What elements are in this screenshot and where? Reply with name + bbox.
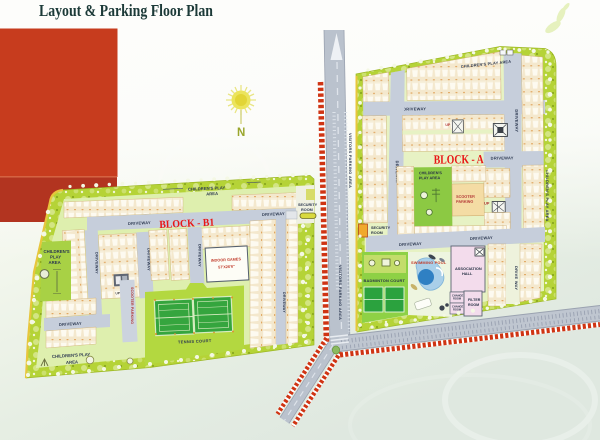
svg-text:DRIVE WAY: DRIVE WAY [514,266,519,290]
svg-text:ROOM: ROOM [301,208,313,212]
svg-text:PLAY: PLAY [50,255,61,260]
svg-text:ROOM: ROOM [468,303,479,307]
svg-text:CHILDREN'S: CHILDREN'S [44,249,70,254]
svg-text:DRIVEWAY: DRIVEWAY [262,211,285,217]
svg-text:UP: UP [484,202,490,206]
svg-text:DRIVEWAY: DRIVEWAY [128,220,151,226]
svg-text:UP: UP [445,123,451,127]
svg-text:ROOM: ROOM [453,308,461,312]
svg-text:N: N [237,127,245,139]
svg-text:PARKING: PARKING [456,200,473,204]
svg-text:BLOCK - A: BLOCK - A [434,152,484,167]
svg-text:AREA: AREA [206,191,218,197]
svg-text:CHILDREN'S PLAY AREA: CHILDREN'S PLAY AREA [545,170,550,222]
svg-text:FILTER: FILTER [468,298,481,302]
svg-text:PLAY AREA: PLAY AREA [419,176,441,180]
svg-text:SECURITY: SECURITY [371,226,391,230]
svg-text:DRIVEWAY: DRIVEWAY [95,252,99,274]
svg-text:VISITORS PARKING AREA: VISITORS PARKING AREA [338,265,343,320]
svg-text:DRIVEWAY: DRIVEWAY [470,235,493,241]
svg-text:ROOM: ROOM [371,231,383,235]
svg-text:AREA: AREA [66,359,78,365]
svg-text:SCOOTER: SCOOTER [456,195,475,199]
svg-text:AREA: AREA [49,260,61,265]
svg-text:ROOM: ROOM [453,297,461,301]
svg-text:DRIVEWAY: DRIVEWAY [491,155,514,160]
svg-text:CHILDREN'S: CHILDREN'S [419,171,443,175]
svg-text:DRIVEWAY: DRIVEWAY [282,292,286,313]
svg-text:DRIVEWAY: DRIVEWAY [399,241,422,247]
svg-text:HALL: HALL [462,271,473,276]
svg-text:Layout & Parking Floor Plan: Layout & Parking Floor Plan [39,1,213,20]
svg-text:SCOOTER PARKING: SCOOTER PARKING [130,287,134,324]
svg-text:DRIVEWAY: DRIVEWAY [198,244,203,267]
svg-text:BADMINTON COURT: BADMINTON COURT [364,278,406,283]
svg-text:VISITORS PARKING AREA: VISITORS PARKING AREA [348,133,353,188]
svg-text:SECURITY: SECURITY [298,203,318,207]
svg-text:DRIVEWAY: DRIVEWAY [514,109,519,132]
svg-text:DRIVEWAY: DRIVEWAY [403,106,426,111]
